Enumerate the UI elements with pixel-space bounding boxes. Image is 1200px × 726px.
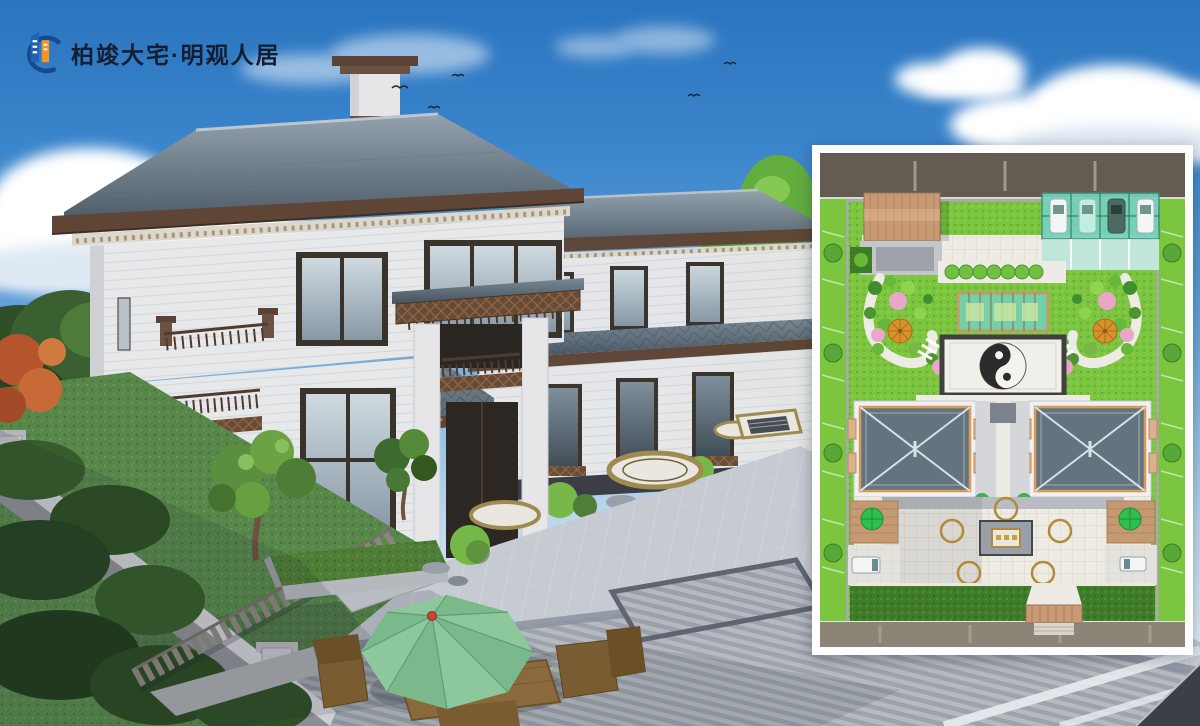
parked-car <box>1108 199 1125 233</box>
glass-parking-canopy <box>1042 193 1159 239</box>
white-car <box>1120 557 1146 571</box>
entry-canopy <box>864 193 949 241</box>
glass-pavilion <box>958 293 1048 331</box>
umbrella-finial <box>428 612 437 621</box>
rear-entrance <box>1026 585 1082 635</box>
central-tea-platform <box>980 521 1032 555</box>
side-deck-left <box>848 501 900 585</box>
orange-umbrella-right <box>1093 319 1117 343</box>
villa-roof-left-plan <box>848 401 982 497</box>
brand-logo: 柏竣大宅·明观人居 <box>16 28 281 78</box>
white-van <box>852 557 880 573</box>
orange-umbrella-left <box>888 319 912 343</box>
yinyang-plaza <box>942 337 1064 396</box>
site-plan-inset <box>812 145 1193 655</box>
sunken-grid-feature <box>737 410 801 438</box>
blossom-tree <box>889 292 907 310</box>
blossom-tree <box>1120 328 1134 342</box>
upper-window-left <box>296 252 388 346</box>
rear-entrance-canopy <box>1026 605 1082 623</box>
blossom-tree <box>871 328 885 342</box>
render-canvas: 柏竣大宅·明观人居 <box>0 0 1200 726</box>
top-road <box>820 153 1185 199</box>
wood-chair <box>318 658 368 708</box>
site-plan-drawing <box>820 153 1185 647</box>
villa-roof-right-plan <box>1023 401 1157 497</box>
parked-car <box>1137 199 1154 233</box>
parked-car <box>1050 199 1067 233</box>
logo-building-orange <box>42 40 49 62</box>
parked-car <box>1079 199 1096 233</box>
birds <box>206 59 736 109</box>
wall-slit-window <box>118 298 130 350</box>
bottom-road <box>820 621 1185 647</box>
side-deck-right <box>1105 501 1157 585</box>
brand-logo-text: 柏竣大宅·明观人居 <box>71 36 281 70</box>
blossom-tree <box>1098 292 1116 310</box>
brand-logo-icon <box>16 28 62 78</box>
